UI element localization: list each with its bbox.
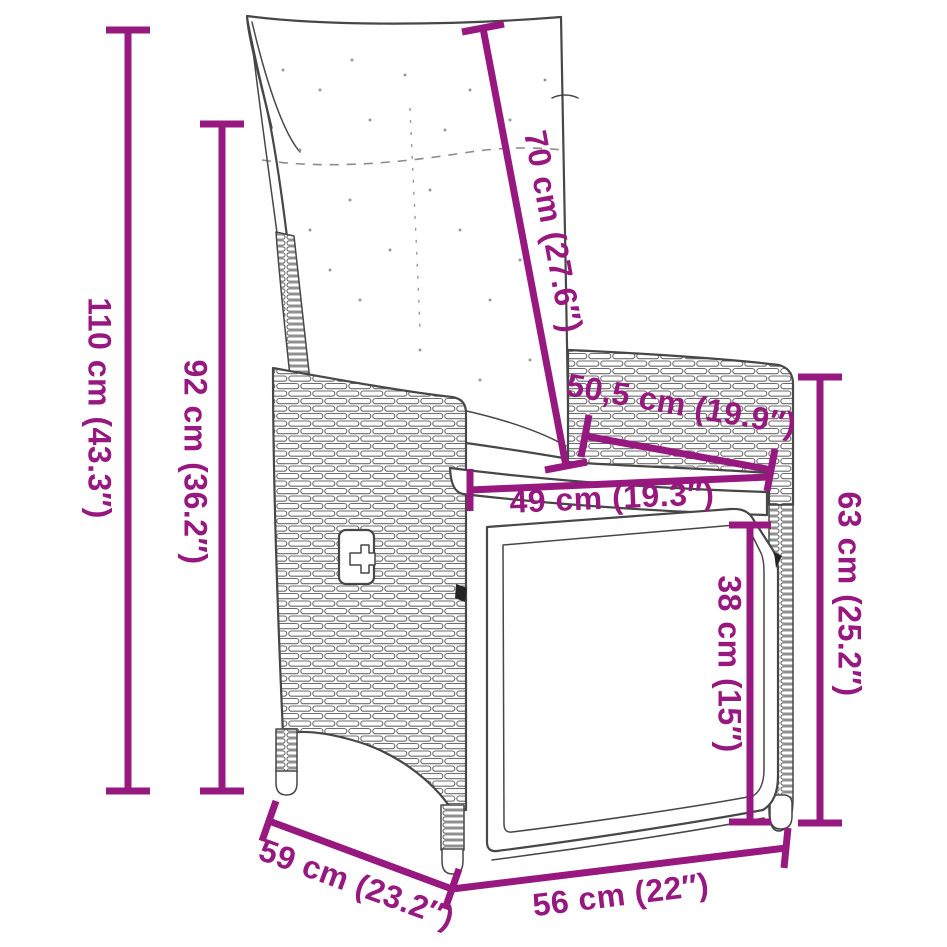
recline-handle: [339, 530, 375, 584]
dimension-diagram: 110 cm (43.3″) 92 cm (36.2″) 70 cm (27.6…: [0, 0, 947, 947]
front-left-leg: [276, 729, 297, 795]
dim-back-height: 92 cm (36.2″): [178, 124, 244, 791]
left-side-panel: [273, 368, 466, 810]
dim-armrest-height-label: 63 cm (25.2″): [832, 491, 868, 696]
dim-overall-height-label: 110 cm (43.3″): [82, 297, 118, 519]
dim-seat-depth: 59 cm (23.2″): [254, 801, 459, 936]
product-dimension-image: 110 cm (43.3″) 92 cm (36.2″) 70 cm (27.6…: [0, 0, 947, 947]
rear-leg: [441, 805, 464, 874]
dim-seat-height-label: 38 cm (15″): [712, 575, 748, 752]
dim-overall-height: 110 cm (43.3″): [82, 30, 150, 791]
dim-back-height-label: 92 cm (36.2″): [178, 359, 214, 564]
dim-armrest-height: 63 cm (25.2″): [798, 377, 868, 823]
